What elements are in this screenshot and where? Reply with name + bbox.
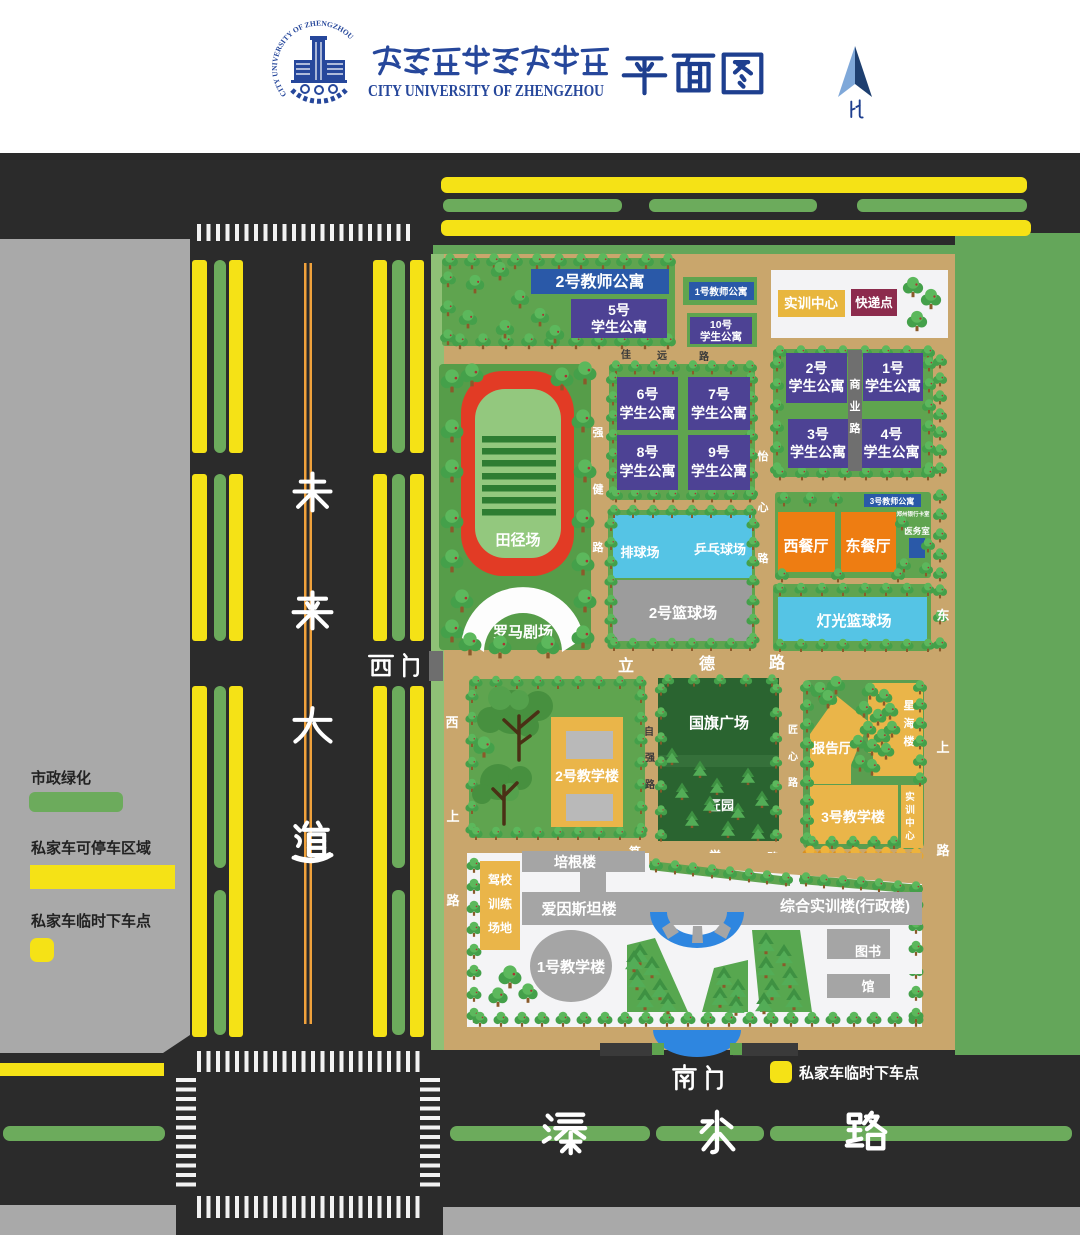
svg-text:医务室: 医务室 [904, 526, 930, 536]
svg-text:匠: 匠 [788, 724, 798, 736]
svg-text:佳: 佳 [621, 348, 631, 361]
svg-text:路: 路 [645, 778, 656, 791]
svg-text:国旗广场: 国旗广场 [689, 714, 749, 732]
svg-text:自: 自 [644, 725, 654, 738]
svg-text:路: 路 [850, 421, 862, 435]
svg-text:3号教学楼: 3号教学楼 [821, 809, 885, 825]
svg-text:6号: 6号 [637, 386, 659, 402]
svg-text:西: 西 [445, 715, 458, 730]
svg-text:健: 健 [593, 482, 605, 496]
svg-text:业: 业 [850, 399, 861, 413]
svg-text:学生公寓: 学生公寓 [864, 444, 920, 460]
svg-text:8号: 8号 [637, 444, 659, 460]
svg-text:3号教师公寓: 3号教师公寓 [870, 496, 914, 506]
svg-text:私家车可停车区域: 私家车可停车区域 [30, 839, 151, 857]
svg-text:学生公寓: 学生公寓 [691, 463, 747, 479]
svg-text:灯光篮球场: 灯光篮球场 [816, 612, 891, 630]
svg-text:路: 路 [769, 653, 786, 672]
svg-text:学生公寓: 学生公寓 [865, 378, 921, 394]
svg-text:心: 心 [788, 751, 798, 763]
svg-text:场地: 场地 [488, 920, 512, 935]
svg-text:驾校: 驾校 [487, 872, 513, 887]
svg-text:商: 商 [850, 377, 861, 391]
svg-text:1号教学楼: 1号教学楼 [537, 958, 605, 976]
svg-text:7号: 7号 [708, 386, 730, 402]
svg-text:乒乓球场: 乒乓球场 [694, 542, 746, 557]
svg-text:5号: 5号 [608, 302, 630, 318]
svg-text:综合实训楼(行政楼): 综合实训楼(行政楼) [780, 897, 910, 915]
svg-text:德: 德 [699, 654, 715, 673]
svg-text:学生公寓: 学生公寓 [700, 330, 742, 343]
svg-text:2号: 2号 [806, 360, 828, 376]
svg-text:路: 路 [788, 776, 799, 789]
svg-text:馆: 馆 [861, 979, 874, 994]
svg-text:1号: 1号 [882, 360, 904, 376]
svg-text:爱因斯坦楼: 爱因斯坦楼 [541, 900, 616, 918]
svg-text:强: 强 [593, 426, 604, 439]
svg-text:心: 心 [758, 501, 769, 514]
svg-text:中: 中 [905, 817, 915, 829]
svg-text:10号: 10号 [710, 319, 732, 331]
svg-text:CITY UNIVERSITY OF ZHENGZHOU: CITY UNIVERSITY OF ZHENGZHOU [368, 81, 604, 100]
svg-text:2号教师公寓: 2号教师公寓 [556, 272, 645, 291]
svg-text:星: 星 [904, 699, 915, 712]
svg-text:快递点: 快递点 [855, 295, 893, 310]
svg-text:东餐厅: 东餐厅 [845, 537, 890, 555]
svg-text:私家车临时下车点: 私家车临时下车点 [30, 912, 151, 930]
svg-text:1号教师公寓: 1号教师公寓 [695, 286, 748, 298]
svg-text:路: 路 [593, 540, 605, 554]
svg-text:学生公寓: 学生公寓 [620, 463, 676, 479]
svg-text:图书: 图书 [855, 944, 881, 959]
svg-text:海: 海 [904, 716, 915, 730]
svg-text:学生公寓: 学生公寓 [691, 405, 747, 421]
svg-text:学生公寓: 学生公寓 [591, 319, 647, 335]
svg-text:学生公寓: 学生公寓 [789, 378, 845, 394]
svg-text:市政绿化: 市政绿化 [31, 769, 91, 787]
svg-text:私家车临时下车点: 私家车临时下车点 [798, 1064, 919, 1082]
svg-text:实训中心: 实训中心 [784, 295, 838, 311]
svg-text:实: 实 [905, 791, 915, 803]
svg-text:立: 立 [618, 656, 634, 675]
svg-text:楼: 楼 [904, 734, 915, 748]
svg-text:3号: 3号 [807, 426, 829, 442]
svg-text:训练: 训练 [488, 896, 512, 911]
svg-text:心: 心 [905, 831, 915, 842]
svg-text:强: 强 [645, 752, 655, 764]
svg-text:路: 路 [446, 893, 460, 908]
svg-text:2号教学楼: 2号教学楼 [555, 768, 619, 784]
svg-text:远: 远 [657, 350, 667, 362]
svg-text:9号: 9号 [708, 444, 730, 460]
svg-text:排球场: 排球场 [620, 545, 659, 560]
svg-text:上: 上 [936, 740, 949, 755]
svg-text:培根楼: 培根楼 [554, 854, 596, 870]
svg-text:2号篮球场: 2号篮球场 [649, 604, 717, 622]
svg-text:4号: 4号 [881, 426, 903, 442]
svg-text:怡: 怡 [758, 449, 769, 463]
svg-text:上: 上 [446, 809, 459, 824]
svg-text:学生公寓: 学生公寓 [620, 405, 676, 421]
svg-text:学生公寓: 学生公寓 [790, 444, 846, 460]
svg-text:路: 路 [699, 350, 710, 363]
svg-text:路: 路 [936, 843, 950, 858]
svg-text:训: 训 [905, 804, 915, 816]
svg-text:田径场: 田径场 [495, 531, 540, 549]
svg-text:报告厅: 报告厅 [812, 740, 853, 756]
svg-text:东: 东 [936, 608, 949, 623]
svg-text:西餐厅: 西餐厅 [783, 537, 828, 555]
